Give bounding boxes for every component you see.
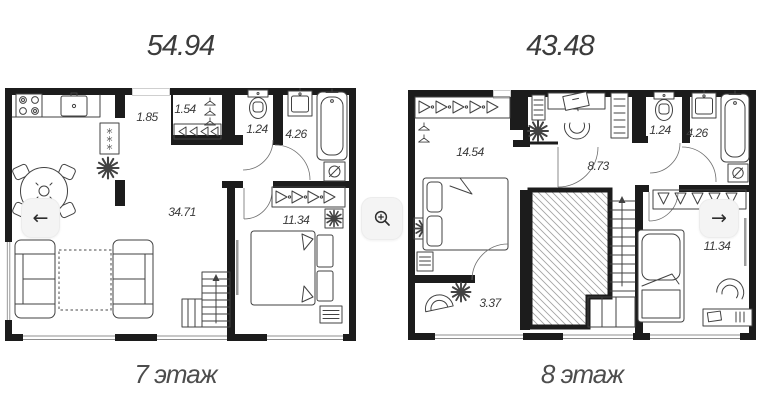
desk <box>703 309 752 326</box>
stove-icon <box>16 94 42 117</box>
room-area-wardrobe: 1.54 <box>174 102 196 116</box>
room-area-wc: 1.24 <box>649 123 671 137</box>
entrance-opening <box>133 89 170 96</box>
void-opening-hatched <box>530 190 610 327</box>
room-area-living: 34.71 <box>168 205 196 219</box>
double-bed <box>423 178 508 250</box>
radiator-icon <box>417 252 433 271</box>
sofa <box>113 240 153 318</box>
room-area-bathroom: 4.26 <box>285 127 307 141</box>
bathtub-icon <box>317 89 347 160</box>
nightstand <box>317 271 333 301</box>
wardrobe-icon <box>415 97 510 118</box>
desk-chair <box>565 123 590 139</box>
floor-caption-7: 7 этаж <box>0 359 351 390</box>
plant-icon <box>528 121 548 141</box>
floor-caption-8: 8 этаж <box>408 359 756 390</box>
desk-chair <box>716 276 747 300</box>
total-area-floor-7: 54.94 <box>5 30 356 63</box>
room-area-hall: 8.73 <box>587 159 609 173</box>
bathroom-sink-icon <box>692 90 716 118</box>
room-area-entry: 3.37 <box>479 296 502 310</box>
magnifier-plus-icon <box>373 209 392 228</box>
plant-icon <box>325 209 343 228</box>
bathroom-sink-icon <box>288 88 312 116</box>
hangers-icon <box>205 98 216 125</box>
zoom-plan-button[interactable] <box>361 197 403 240</box>
shelf-icon <box>611 93 628 138</box>
washing-machine-icon <box>728 164 748 182</box>
sofa <box>15 240 55 318</box>
arrow-left-icon: ← <box>33 209 49 228</box>
wardrobe-icon <box>272 187 345 207</box>
room-area-wc: 1.24 <box>246 122 268 136</box>
floor-plan-viewer: 54.94 43.48 <box>0 0 760 410</box>
double-bed <box>251 231 333 305</box>
armchair <box>423 292 453 312</box>
room-area-hallway: 1.85 <box>136 110 158 124</box>
plant-icon <box>98 158 119 179</box>
plant-icon <box>452 283 471 302</box>
radiator-strip <box>744 218 747 266</box>
windows-floor-8 <box>435 335 740 339</box>
fridge-icon <box>100 123 119 154</box>
nightstand <box>317 235 333 267</box>
toilet-icon <box>654 92 674 121</box>
shelf-icon <box>532 95 545 120</box>
total-area-floor-8: 43.48 <box>386 30 734 63</box>
rug <box>59 250 111 310</box>
desk <box>548 92 605 114</box>
radiator-icon <box>320 306 342 323</box>
hangers-icon <box>419 123 430 142</box>
radiator-strip <box>236 240 239 295</box>
toilet-icon <box>248 90 268 119</box>
single-bed <box>638 230 684 322</box>
room-area-bathroom: 4.26 <box>686 126 708 140</box>
next-plan-button[interactable]: → <box>699 199 739 238</box>
arrow-right-icon: → <box>711 209 727 228</box>
room-area-bedroom-main: 14.54 <box>456 145 484 159</box>
prev-plan-button[interactable]: ← <box>21 198 60 238</box>
bathtub-icon <box>721 91 749 162</box>
washing-machine-icon <box>324 162 345 181</box>
room-area-bedroom: 11.34 <box>283 213 310 227</box>
room-area-bedroom-second: 11.34 <box>704 239 731 253</box>
kitchen-sink-icon <box>61 93 87 116</box>
stairs-icon <box>182 272 230 327</box>
